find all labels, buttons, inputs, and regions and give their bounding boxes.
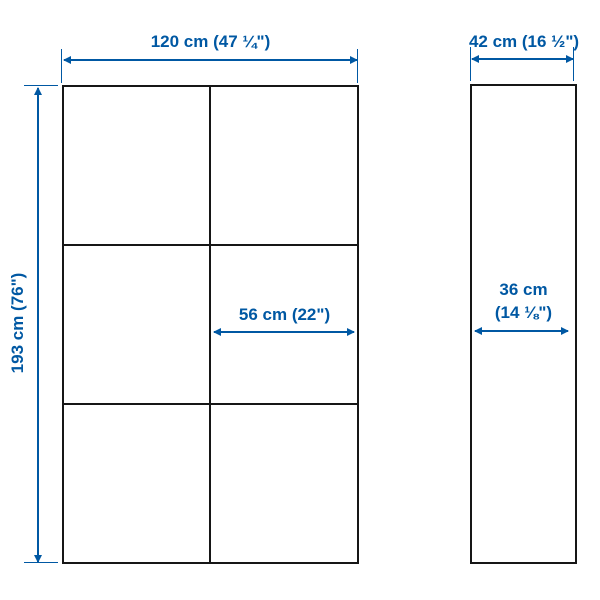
- height-dimension-tick-top: [24, 85, 58, 86]
- inner-width-dimension-arrow: [214, 331, 354, 333]
- arrowhead-up-icon: [34, 87, 42, 95]
- front-view-shelf-line-1: [62, 244, 359, 246]
- arrowhead-left-icon: [474, 327, 482, 335]
- width-dimension-tick-right: [357, 49, 358, 83]
- height-dimension-tick-bottom: [24, 562, 58, 563]
- front-view-center-divider: [209, 85, 211, 564]
- depth-dimension-arrow: [472, 58, 573, 60]
- arrowhead-right-icon: [347, 328, 355, 336]
- depth-dimension-tick-left: [470, 47, 471, 81]
- inner-depth-dimension-label-line2: (14 ⅛"): [471, 303, 576, 322]
- side-view-outline: [470, 84, 577, 564]
- front-view-shelf-line-2: [62, 403, 359, 405]
- dimension-diagram: 120 cm (47 ¼") 42 cm (16 ½") 193 cm (76"…: [0, 0, 600, 600]
- height-dimension-label: 193 cm (76"): [8, 222, 28, 424]
- depth-dimension-tick-right: [573, 47, 574, 81]
- arrowhead-left-icon: [213, 328, 221, 336]
- inner-depth-dimension-label-line1: 36 cm: [471, 280, 576, 299]
- arrowhead-right-icon: [561, 327, 569, 335]
- width-dimension-label: 120 cm (47 ¼"): [62, 32, 359, 51]
- inner-width-dimension-label: 56 cm (22"): [211, 305, 358, 324]
- arrowhead-left-icon: [63, 56, 71, 64]
- inner-depth-dimension-arrow: [475, 330, 568, 332]
- width-dimension-tick-left: [61, 49, 62, 83]
- arrowhead-left-icon: [471, 55, 479, 63]
- height-dimension-arrow: [37, 88, 39, 562]
- width-dimension-arrow: [64, 59, 357, 61]
